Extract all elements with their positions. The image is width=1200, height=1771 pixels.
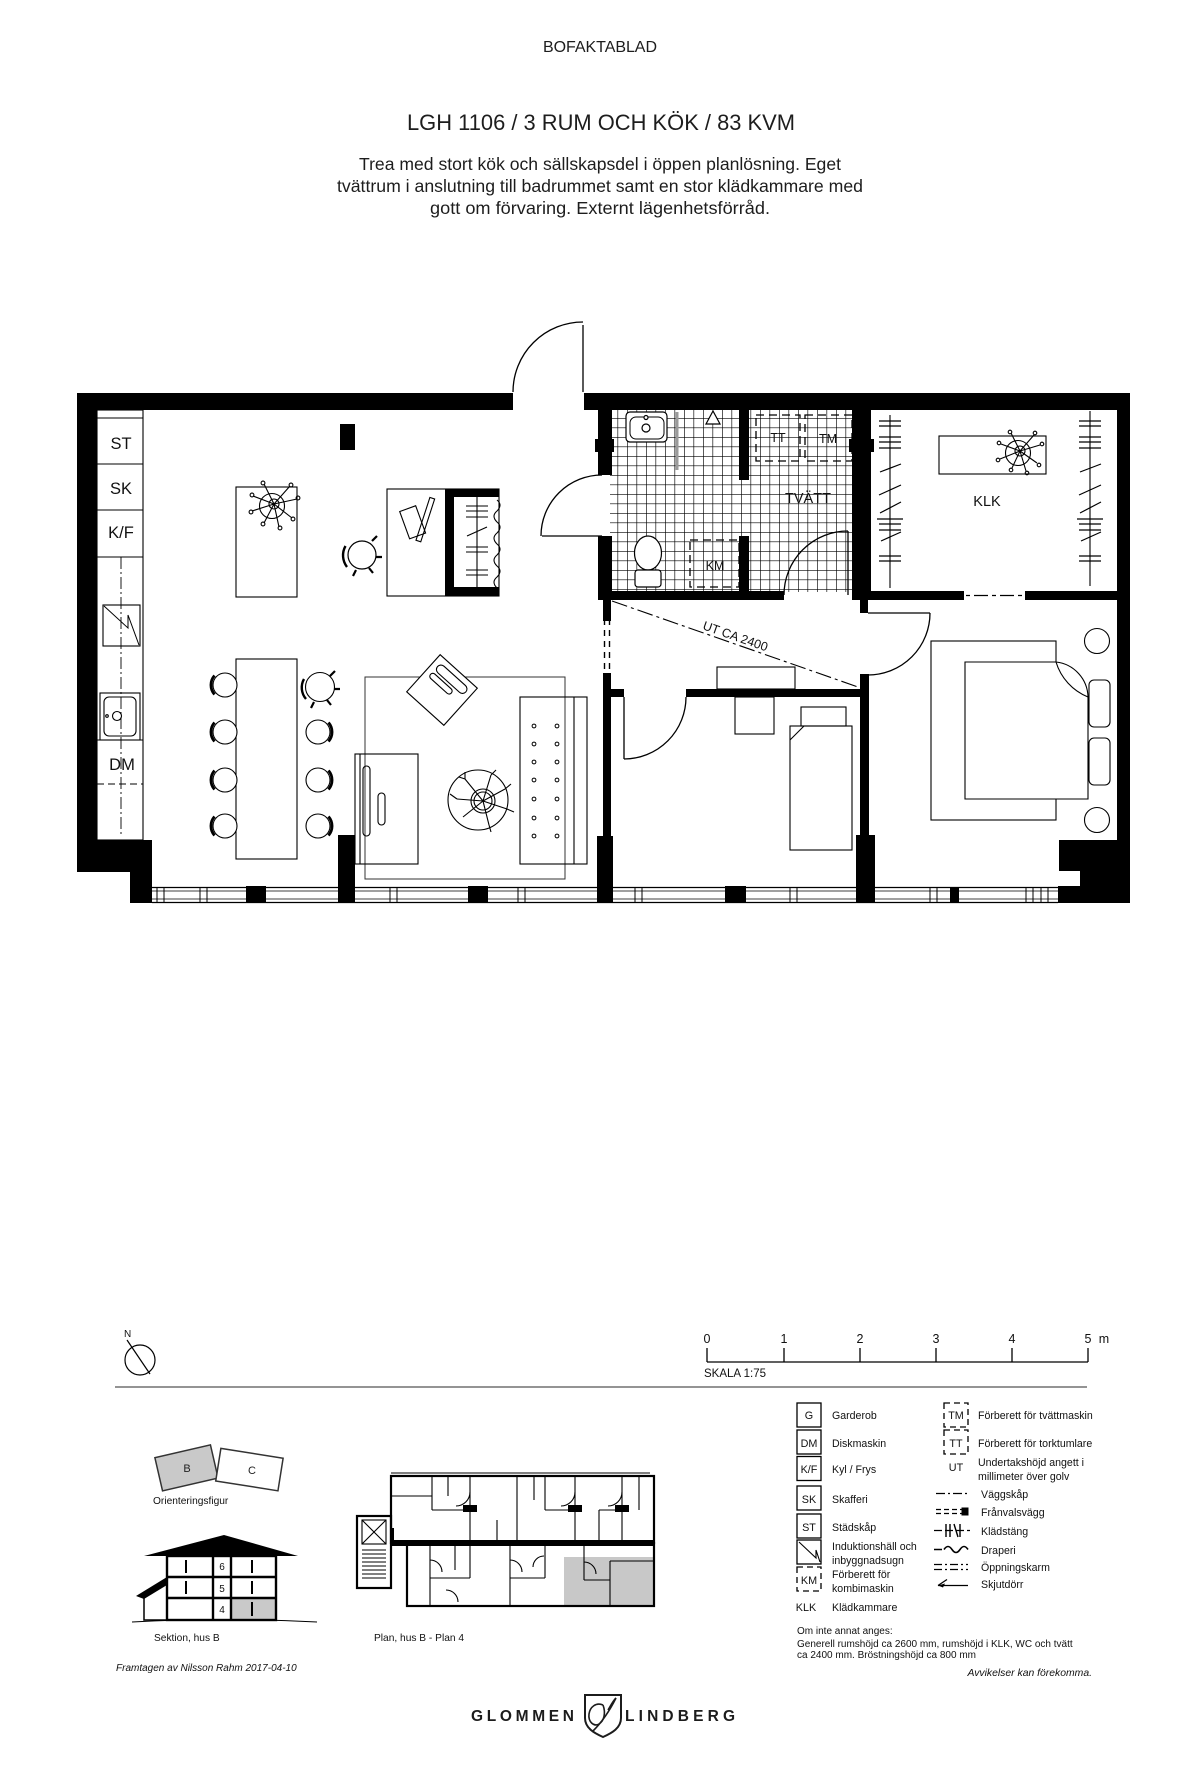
svg-text:6: 6 xyxy=(219,1562,225,1573)
svg-text:KM: KM xyxy=(801,1575,817,1587)
svg-text:4: 4 xyxy=(219,1605,225,1616)
svg-text:m: m xyxy=(1099,1332,1109,1346)
svg-text:KLK: KLK xyxy=(973,494,1001,510)
svg-text:tvättrum i anslutning till bad: tvättrum i anslutning till badrummet sam… xyxy=(337,176,863,196)
svg-text:SK: SK xyxy=(110,480,132,498)
svg-text:B: B xyxy=(183,1463,190,1475)
svg-text:N: N xyxy=(124,1329,131,1340)
svg-text:TT: TT xyxy=(770,431,786,445)
svg-text:Frånvalsvägg: Frånvalsvägg xyxy=(981,1507,1045,1519)
svg-text:LINDBERG: LINDBERG xyxy=(625,1708,739,1725)
svg-text:inbyggnadsugn: inbyggnadsugn xyxy=(832,1555,904,1567)
svg-text:millimeter över golv: millimeter över golv xyxy=(978,1471,1070,1483)
svg-text:K/F: K/F xyxy=(108,524,134,542)
svg-text:Väggskåp: Väggskåp xyxy=(981,1489,1028,1501)
svg-text:UT CA 2400: UT CA 2400 xyxy=(701,619,770,655)
svg-text:K/F: K/F xyxy=(801,1464,818,1476)
svg-text:ST: ST xyxy=(110,435,131,453)
svg-text:DM: DM xyxy=(801,1438,818,1450)
svg-text:LGH 1106 / 3 RUM OCH KÖK / 83: LGH 1106 / 3 RUM OCH KÖK / 83 KVM xyxy=(407,110,795,135)
svg-text:Orienteringsfigur: Orienteringsfigur xyxy=(153,1496,229,1507)
svg-text:Städskåp: Städskåp xyxy=(832,1522,876,1534)
svg-text:Klädkammare: Klädkammare xyxy=(832,1602,897,1614)
svg-text:2: 2 xyxy=(857,1332,864,1346)
svg-text:GLOMMEN: GLOMMEN xyxy=(471,1708,579,1725)
svg-text:Diskmaskin: Diskmaskin xyxy=(832,1438,886,1450)
svg-text:DM: DM xyxy=(109,756,135,774)
svg-text:kombimaskin: kombimaskin xyxy=(832,1583,894,1595)
svg-text:Sektion, hus B: Sektion, hus B xyxy=(154,1633,220,1644)
svg-text:UT: UT xyxy=(949,1462,964,1474)
svg-text:Garderob: Garderob xyxy=(832,1410,877,1422)
svg-text:TT: TT xyxy=(949,1438,963,1450)
svg-text:KLK: KLK xyxy=(796,1602,817,1614)
svg-text:Klädstäng: Klädstäng xyxy=(981,1526,1028,1538)
svg-text:5: 5 xyxy=(219,1584,225,1595)
svg-text:5: 5 xyxy=(1085,1332,1092,1346)
svg-text:G: G xyxy=(805,1410,813,1422)
svg-text:Kyl / Frys: Kyl / Frys xyxy=(832,1464,876,1476)
svg-text:Draperi: Draperi xyxy=(981,1545,1016,1557)
svg-text:0: 0 xyxy=(704,1332,711,1346)
svg-text:SK: SK xyxy=(802,1494,817,1506)
svg-text:Framtagen av Nilsson Rahm 2017: Framtagen av Nilsson Rahm 2017-04-10 xyxy=(116,1663,297,1674)
svg-text:Induktionshäll och: Induktionshäll och xyxy=(832,1541,917,1553)
svg-text:Öppningskarm: Öppningskarm xyxy=(981,1562,1050,1574)
svg-text:Förberett för torktumlare: Förberett för torktumlare xyxy=(978,1438,1092,1450)
svg-text:TVÄTT: TVÄTT xyxy=(785,490,831,507)
svg-text:C: C xyxy=(248,1465,256,1477)
svg-text:TM: TM xyxy=(819,432,837,446)
svg-text:Skafferi: Skafferi xyxy=(832,1494,868,1506)
svg-text:ST: ST xyxy=(802,1522,816,1534)
svg-text:Skjutdörr: Skjutdörr xyxy=(981,1579,1024,1591)
svg-text:4: 4 xyxy=(1009,1332,1016,1346)
svg-text:TM: TM xyxy=(948,1410,964,1422)
svg-text:Trea med stort kök och sällska: Trea med stort kök och sällskapsdel i öp… xyxy=(359,154,841,174)
svg-text:BOFAKTABLAD: BOFAKTABLAD xyxy=(543,39,657,56)
svg-text:KM: KM xyxy=(706,559,725,573)
svg-text:1: 1 xyxy=(781,1332,788,1346)
svg-text:SKALA 1:75: SKALA 1:75 xyxy=(704,1368,766,1380)
svg-text:Generell rumshöjd ca 2600 mm,: Generell rumshöjd ca 2600 mm, rumshöjd i… xyxy=(797,1639,1073,1650)
svg-text:Avvikelser kan förekomma.: Avvikelser kan förekomma. xyxy=(966,1668,1092,1679)
svg-text:Förberett för: Förberett för xyxy=(832,1569,891,1581)
svg-text:Förberett för tvättmaskin: Förberett för tvättmaskin xyxy=(978,1410,1093,1422)
svg-text:Plan, hus B - Plan 4: Plan, hus B - Plan 4 xyxy=(374,1633,464,1644)
svg-text:Om inte annat anges:: Om inte annat anges: xyxy=(797,1626,893,1637)
svg-text:gott om förvaring. Externt läg: gott om förvaring. Externt lägenhetsförr… xyxy=(430,198,770,218)
svg-text:Undertakshöjd angett i: Undertakshöjd angett i xyxy=(978,1457,1084,1469)
svg-text:3: 3 xyxy=(933,1332,940,1346)
svg-text:ca 2400 mm. Bröstningshöjd ca: ca 2400 mm. Bröstningshöjd ca 800 mm xyxy=(797,1650,976,1661)
